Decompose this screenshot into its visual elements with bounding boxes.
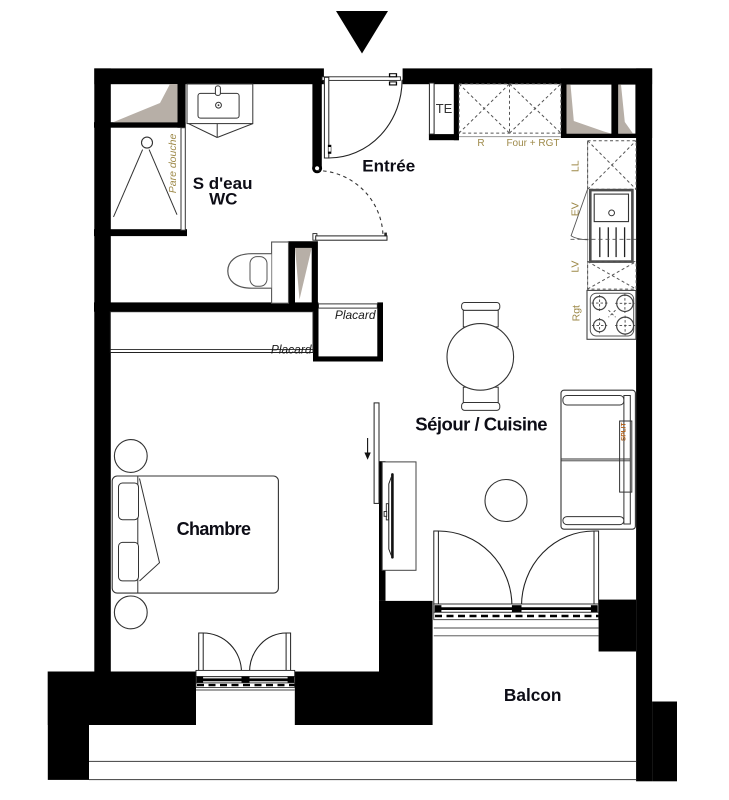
svg-text:EV: EV bbox=[570, 202, 582, 216]
svg-text:Chambre: Chambre bbox=[177, 519, 251, 539]
svg-text:Placard: Placard bbox=[335, 308, 376, 322]
svg-text:Placard: Placard bbox=[271, 343, 312, 357]
svg-text:R: R bbox=[477, 138, 484, 149]
svg-text:Four + RGT: Four + RGT bbox=[506, 138, 559, 149]
svg-text:LV: LV bbox=[570, 261, 582, 273]
svg-text:SPLIT: SPLIT bbox=[620, 423, 627, 441]
svg-text:WC: WC bbox=[209, 189, 237, 208]
svg-text:LL: LL bbox=[570, 160, 582, 172]
svg-text:Rgt: Rgt bbox=[571, 305, 583, 321]
svg-text:TE: TE bbox=[436, 101, 453, 116]
svg-text:Pare douche: Pare douche bbox=[167, 134, 179, 194]
svg-text:Entrée: Entrée bbox=[362, 157, 415, 176]
svg-text:Balcon: Balcon bbox=[504, 685, 562, 705]
svg-text:Séjour / Cuisine: Séjour / Cuisine bbox=[415, 413, 547, 434]
